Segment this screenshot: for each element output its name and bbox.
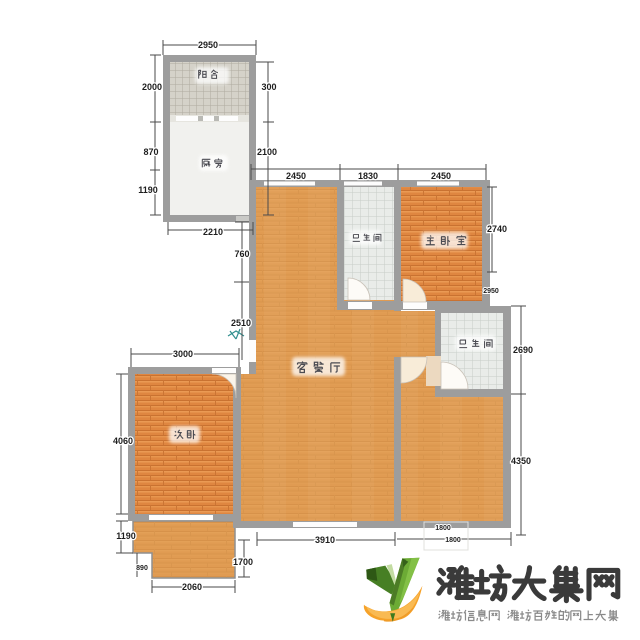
svg-text:2450: 2450	[286, 171, 306, 181]
svg-text:2210: 2210	[203, 227, 223, 237]
svg-text:870: 870	[143, 147, 158, 157]
svg-text:2060: 2060	[182, 582, 202, 592]
svg-text:1830: 1830	[358, 171, 378, 181]
svg-text:3000: 3000	[173, 349, 193, 359]
svg-text:2100: 2100	[257, 147, 277, 157]
svg-text:2690: 2690	[513, 345, 533, 355]
svg-text:4060: 4060	[113, 436, 133, 446]
svg-text:1700: 1700	[233, 557, 253, 567]
svg-text:2950: 2950	[198, 40, 218, 50]
svg-text:760: 760	[234, 249, 249, 259]
svg-text:890: 890	[136, 565, 148, 572]
svg-text:1190: 1190	[138, 185, 158, 195]
svg-text:2740: 2740	[487, 224, 507, 234]
svg-text:4350: 4350	[511, 456, 531, 466]
svg-text:1800: 1800	[445, 537, 461, 544]
svg-text:2950: 2950	[483, 288, 499, 295]
svg-text:300: 300	[261, 82, 276, 92]
svg-text:1190: 1190	[116, 531, 136, 541]
svg-text:3910: 3910	[315, 535, 335, 545]
svg-text:2450: 2450	[431, 171, 451, 181]
svg-text:2510: 2510	[231, 318, 251, 328]
svg-text:1800: 1800	[435, 525, 451, 532]
svg-text:2000: 2000	[142, 82, 162, 92]
